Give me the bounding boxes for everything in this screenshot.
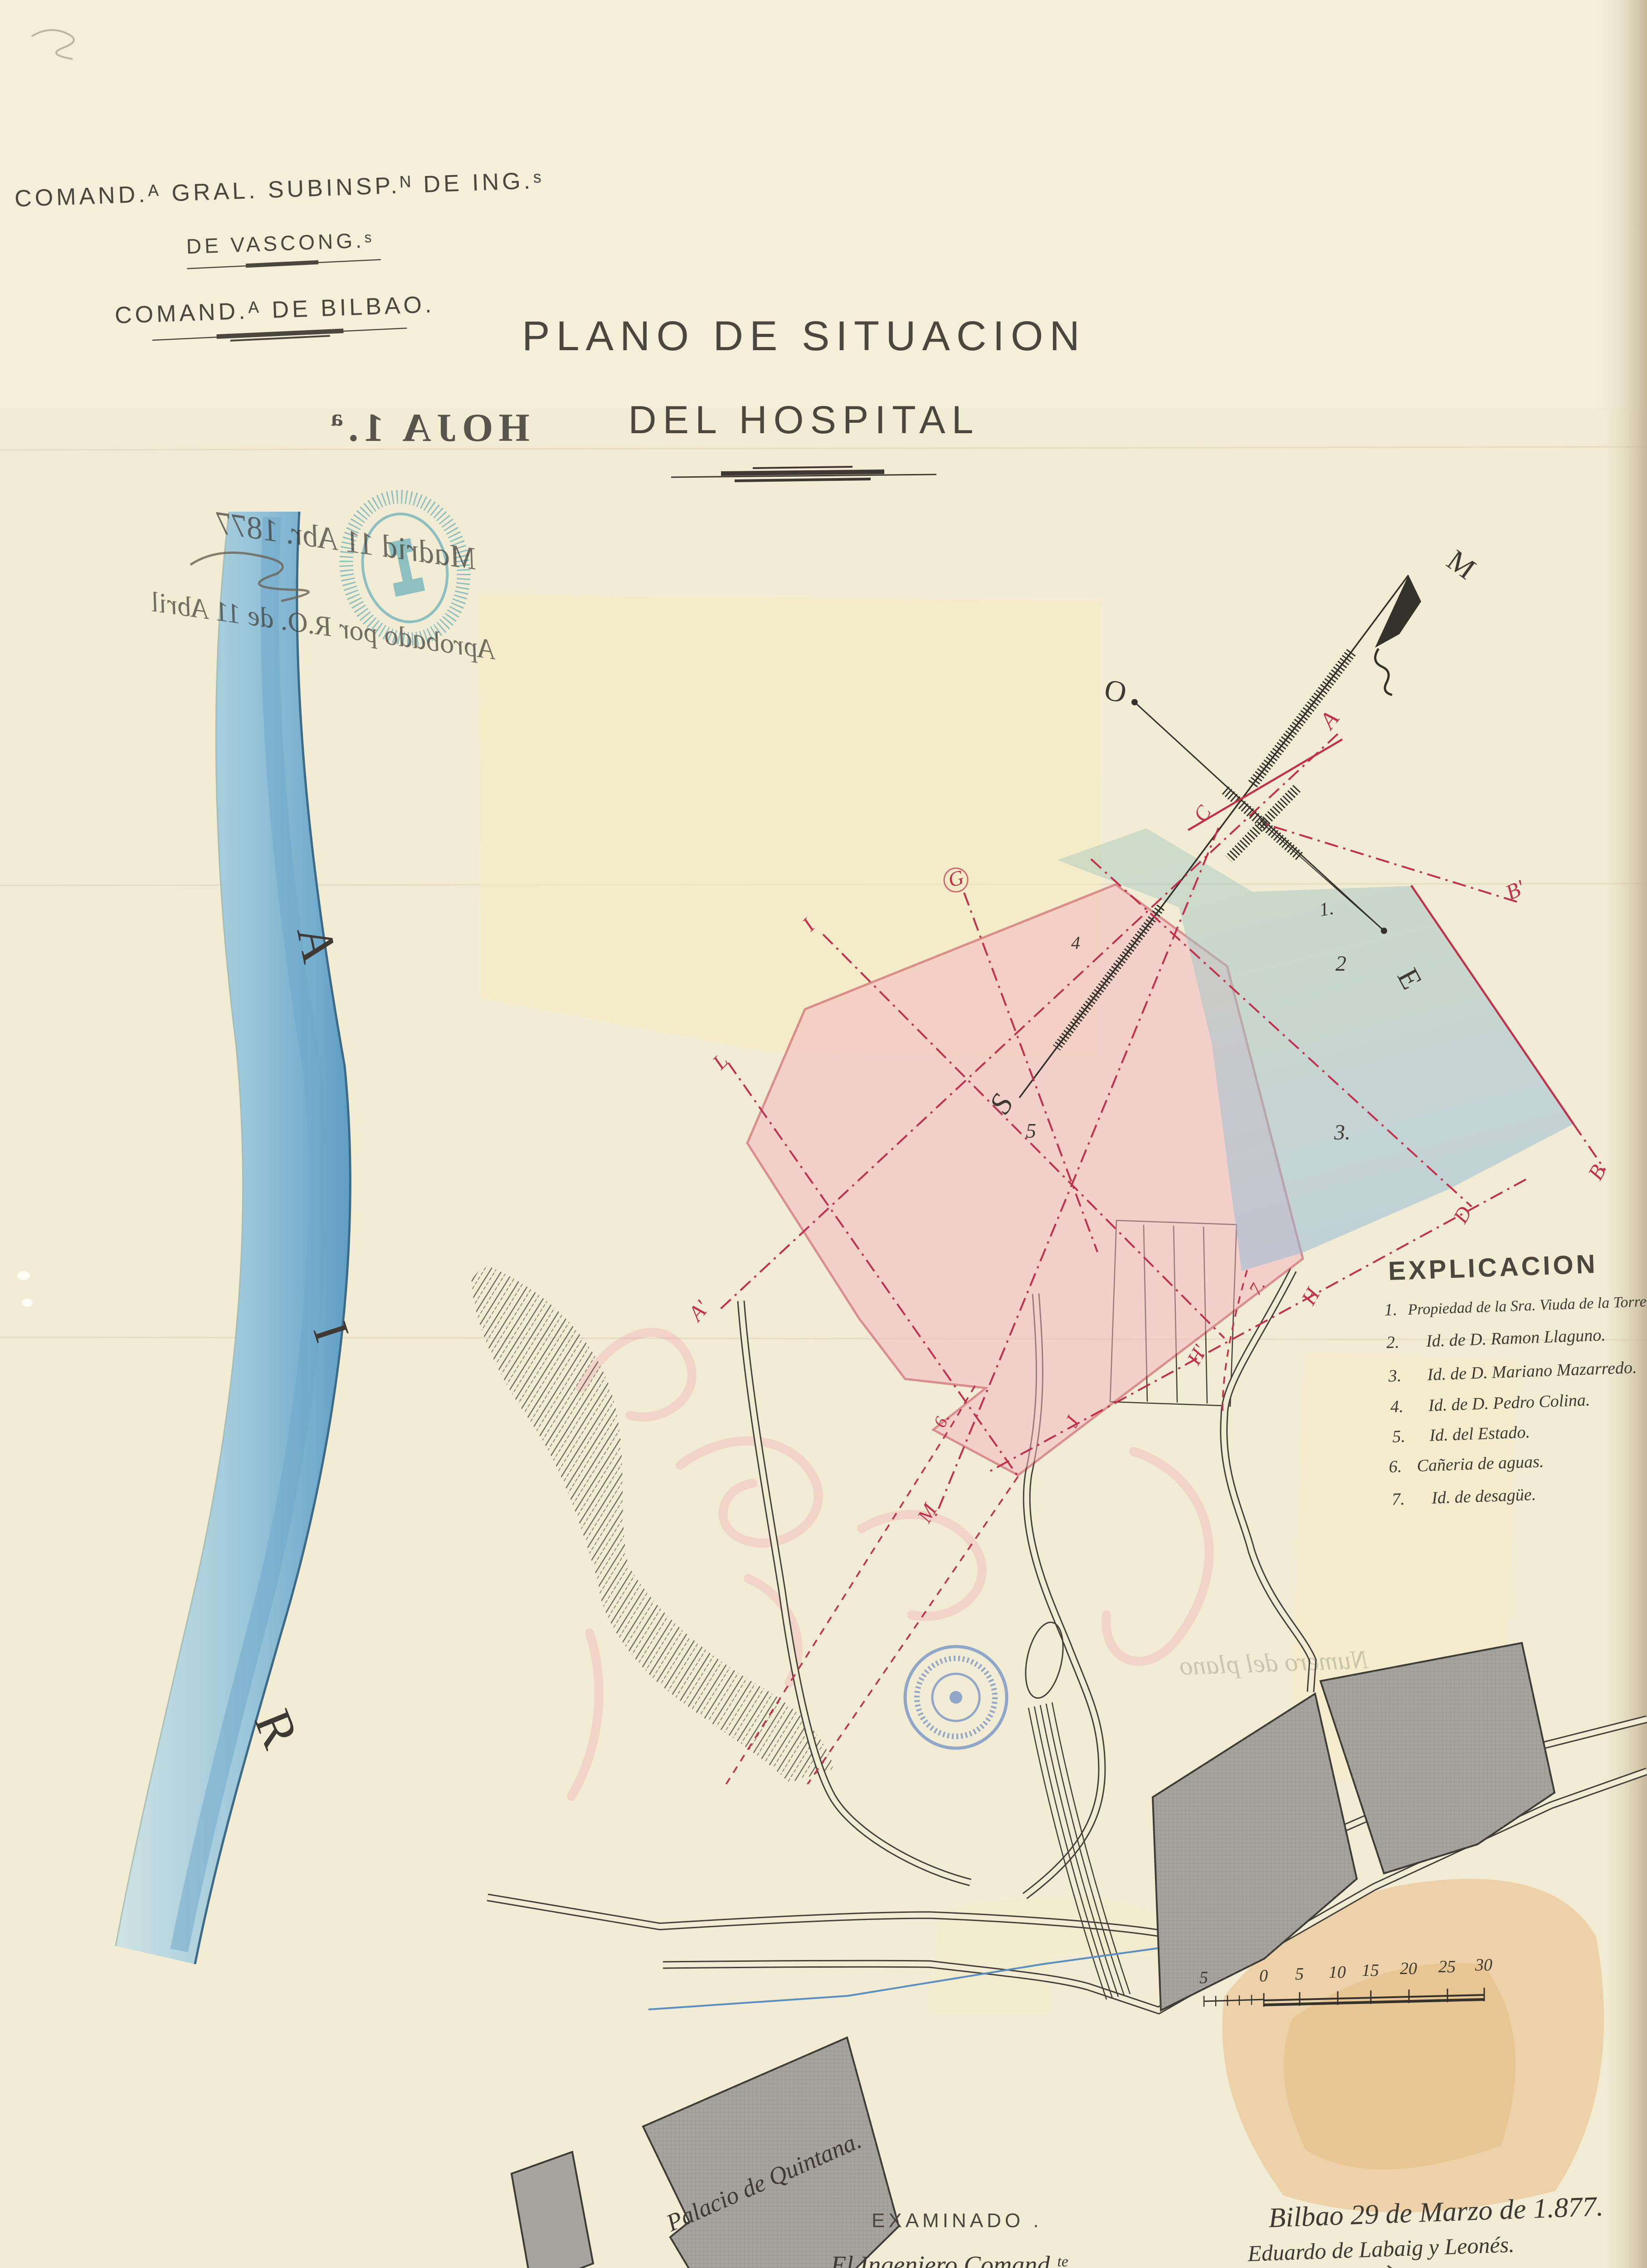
map-canvas: R I A xyxy=(0,0,1647,2268)
scale-fraction-num: 1 xyxy=(1410,1909,1419,1927)
paper-hole xyxy=(17,1271,30,1280)
paper-right-edge xyxy=(1596,0,1647,2268)
legend-item-num: 4. xyxy=(1390,1397,1403,1417)
examined-center: EXAMINADO . xyxy=(872,2209,1043,2232)
legend-item-num: 1. xyxy=(1384,1300,1398,1320)
scale-caption: Escala de xyxy=(1285,1911,1386,1944)
scanned-map-sheet: R I A xyxy=(0,0,1647,2268)
scale-tick: 10 xyxy=(1329,1963,1346,1982)
scale-tick: 25 xyxy=(1438,1957,1456,1976)
title-line1: PLANO DE SITUACION xyxy=(522,313,1086,359)
title-line2: DEL HOSPITAL xyxy=(629,398,980,442)
sheet-stamp-text: HOJA 1.ª xyxy=(326,406,530,450)
scale-tick: 0 xyxy=(1259,1966,1268,1985)
legend-item-text: Id. de desagüe. xyxy=(1431,1485,1536,1508)
legend-item-num: 2. xyxy=(1386,1333,1399,1352)
scale-tick: 5 xyxy=(1295,1965,1304,1984)
west-dot xyxy=(1131,699,1138,705)
legend-item-num: 6. xyxy=(1389,1457,1402,1476)
label-parcel-3: 3. xyxy=(1334,1120,1350,1144)
role-center: El Ingeniero Comand.ᵗᵉ xyxy=(830,2251,1068,2268)
label-parcel-5: 5 xyxy=(1026,1119,1036,1142)
scale-fraction-den: 500 xyxy=(1405,1935,1430,1955)
label-parcel-4: 4 xyxy=(1071,933,1080,953)
scale-tick: 5 xyxy=(1199,1968,1208,1987)
legend-item-text: Id. del Estado. xyxy=(1429,1422,1530,1445)
label-parcel-2: 2 xyxy=(1335,952,1346,976)
scale-tick: 15 xyxy=(1362,1961,1379,1980)
examined-left: EXAMINADO . xyxy=(190,2203,361,2225)
legend-item-num: 3. xyxy=(1388,1366,1402,1386)
scale-tick: 20 xyxy=(1400,1959,1417,1978)
stamp2-center xyxy=(950,1691,962,1704)
paper-hole xyxy=(22,1299,33,1307)
mirrored-sheet-stamp: HOJA 1.ª xyxy=(326,406,530,450)
legend-item-num: 5. xyxy=(1392,1427,1406,1447)
role-left: El Com.ᵗᵉ Gral. Subinsp.ʳ xyxy=(140,2236,396,2264)
legend-item-num: 7. xyxy=(1391,1490,1405,1509)
scale-tick: 30 xyxy=(1475,1955,1492,1975)
